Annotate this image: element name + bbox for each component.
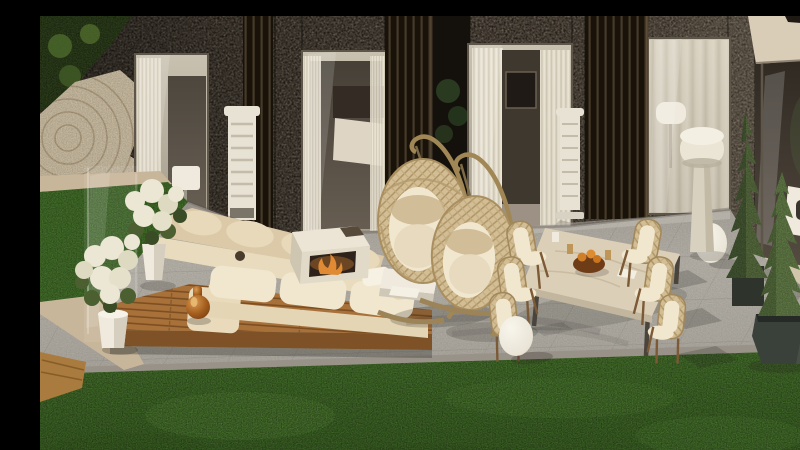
egg-lamp-1 (499, 316, 533, 356)
orange-fruit (593, 255, 601, 263)
scene-canvas (40, 16, 800, 450)
small-vase (552, 232, 559, 242)
deck-decor (235, 251, 245, 261)
slat-column-3 (585, 16, 648, 219)
cushion-shade (391, 195, 445, 225)
eave-slab (748, 16, 800, 64)
tv-silhouette (506, 72, 536, 108)
vase-highlight (191, 297, 198, 307)
drink-glass (567, 244, 573, 254)
recess-plant (436, 79, 460, 103)
interior-cushion (796, 200, 800, 220)
fire-pit-table (290, 226, 370, 284)
floor-lamp-shadow (690, 251, 730, 261)
glass-door-4 (648, 38, 730, 214)
orange-fruit (578, 253, 587, 262)
drink-glass (605, 250, 611, 260)
glass-door-2 (302, 51, 388, 234)
heater-mesh (231, 124, 253, 196)
terrace-render: Modern villa terrace with outdoor lounge… (40, 16, 800, 450)
